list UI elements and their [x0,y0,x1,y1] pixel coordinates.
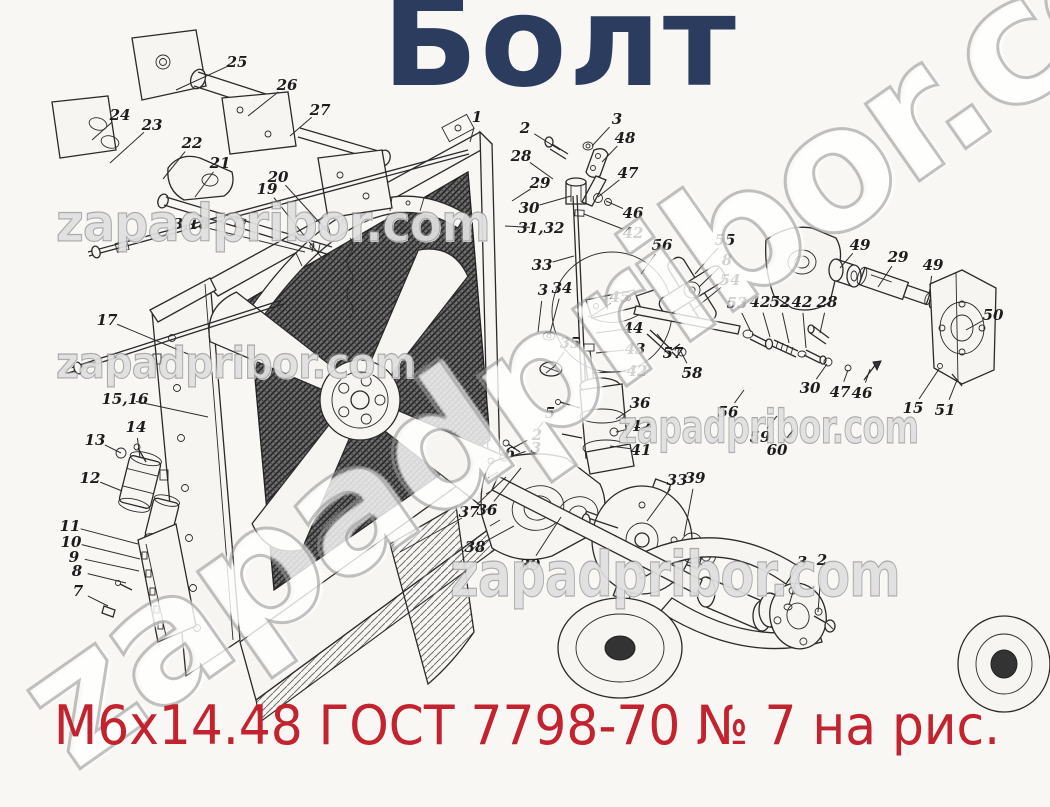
svg-text:53: 53 [727,294,748,312]
svg-text:6: 6 [505,444,516,462]
svg-text:57: 57 [663,344,684,362]
svg-text:42: 42 [623,224,644,242]
svg-text:15,16: 15,16 [102,390,150,408]
svg-text:39: 39 [520,556,541,574]
svg-text:3: 3 [538,281,548,299]
svg-text:21: 21 [209,154,231,172]
svg-text:42: 42 [792,293,813,311]
svg-text:54: 54 [720,271,741,289]
svg-text:34: 34 [552,279,573,297]
svg-text:2: 2 [816,551,827,569]
svg-text:35: 35 [560,334,581,352]
svg-text:24: 24 [109,106,131,124]
svg-text:56: 56 [652,236,673,254]
svg-text:3,18: 3,18 [173,215,210,233]
svg-text:33: 33 [532,256,553,274]
svg-text:26: 26 [276,76,298,94]
svg-text:29: 29 [529,174,551,192]
svg-text:41: 41 [631,441,652,459]
svg-text:52: 52 [770,293,791,311]
svg-text:31,32: 31,32 [518,219,565,237]
svg-text:42: 42 [750,293,771,311]
svg-text:14: 14 [126,418,147,436]
svg-text:55: 55 [715,231,736,249]
svg-text:17: 17 [97,311,118,329]
svg-text:36: 36 [477,501,498,519]
svg-text:5: 5 [545,404,555,422]
svg-text:28: 28 [816,293,838,311]
svg-text:45: 45 [610,288,631,306]
svg-text:22: 22 [181,134,203,152]
svg-text:49: 49 [923,256,944,274]
svg-text:13: 13 [85,431,106,449]
svg-text:50: 50 [983,306,1004,324]
svg-text:3: 3 [797,553,807,571]
svg-text:49: 49 [850,236,871,254]
scanned-catalog-image: 2526272423222120193,181715,1614131211109… [0,0,1050,787]
svg-text:1: 1 [472,108,482,126]
svg-text:43: 43 [625,340,646,358]
svg-text:46: 46 [623,204,644,222]
svg-text:48: 48 [615,129,636,147]
svg-text:8: 8 [722,251,733,269]
svg-text:36: 36 [630,394,651,412]
svg-text:2: 2 [519,119,530,137]
svg-text:8: 8 [72,562,83,580]
svg-text:28: 28 [510,147,532,165]
svg-text:51: 51 [935,401,956,419]
svg-text:3: 3 [612,110,622,128]
svg-text:7: 7 [73,582,84,600]
svg-text:30: 30 [519,199,540,217]
svg-text:30: 30 [800,379,821,397]
svg-text:47: 47 [618,164,639,182]
svg-text:47: 47 [830,383,851,401]
svg-text:42: 42 [627,362,648,380]
svg-text:58: 58 [682,364,703,382]
svg-text:25: 25 [226,53,248,71]
svg-text:42: 42 [631,417,652,435]
exploded-diagram: 2526272423222120193,181715,1614131211109… [0,0,1050,787]
svg-text:29: 29 [887,248,909,266]
svg-text:44: 44 [623,319,644,337]
svg-text:38: 38 [465,538,486,556]
svg-text:19: 19 [257,180,278,198]
svg-text:60: 60 [767,441,788,459]
svg-text:46: 46 [852,384,873,402]
svg-text:23: 23 [141,116,163,134]
svg-text:3: 3 [531,439,541,457]
svg-text:15: 15 [903,399,924,417]
svg-text:12: 12 [80,469,101,487]
svg-text:27: 27 [309,101,331,119]
svg-text:56: 56 [718,403,739,421]
svg-text:39: 39 [685,469,706,487]
